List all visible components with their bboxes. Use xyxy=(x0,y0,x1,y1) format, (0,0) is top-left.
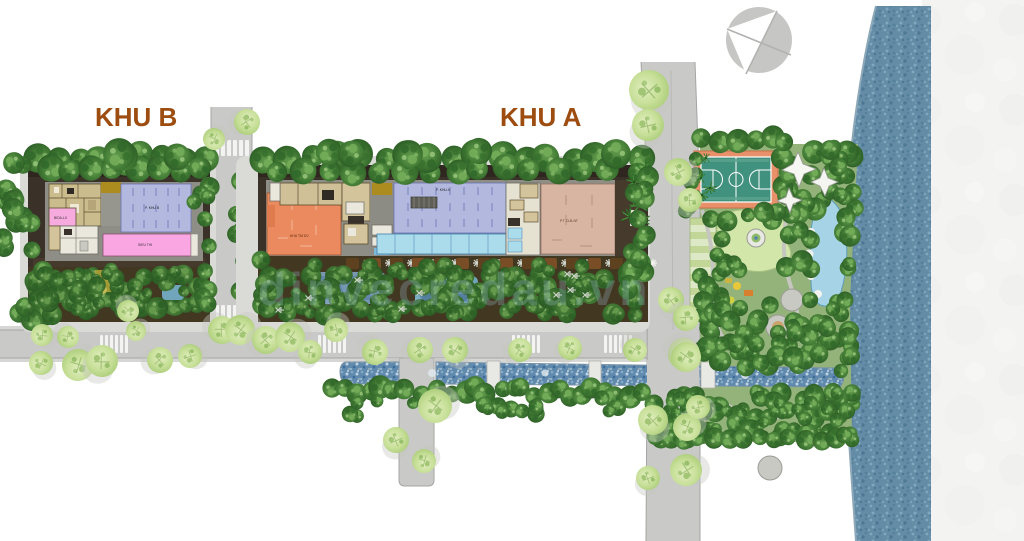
svg-text:BIDA-LX: BIDA-LX xyxy=(54,216,68,220)
svg-text:KHU TM DV: KHU TM DV xyxy=(290,234,309,238)
svg-text:P.T CLB-NT: P.T CLB-NT xyxy=(560,219,578,223)
svg-text:SIEU THI: SIEU THI xyxy=(138,243,152,247)
svg-text:dinvecredau.vn: dinvecredau.vn xyxy=(258,263,651,315)
svg-text:P. KHU B: P. KHU B xyxy=(145,206,160,210)
svg-text:P. KHU A: P. KHU A xyxy=(436,188,451,192)
svg-text:KHU B: KHU B xyxy=(95,102,177,132)
svg-text:KHU A: KHU A xyxy=(500,102,582,132)
